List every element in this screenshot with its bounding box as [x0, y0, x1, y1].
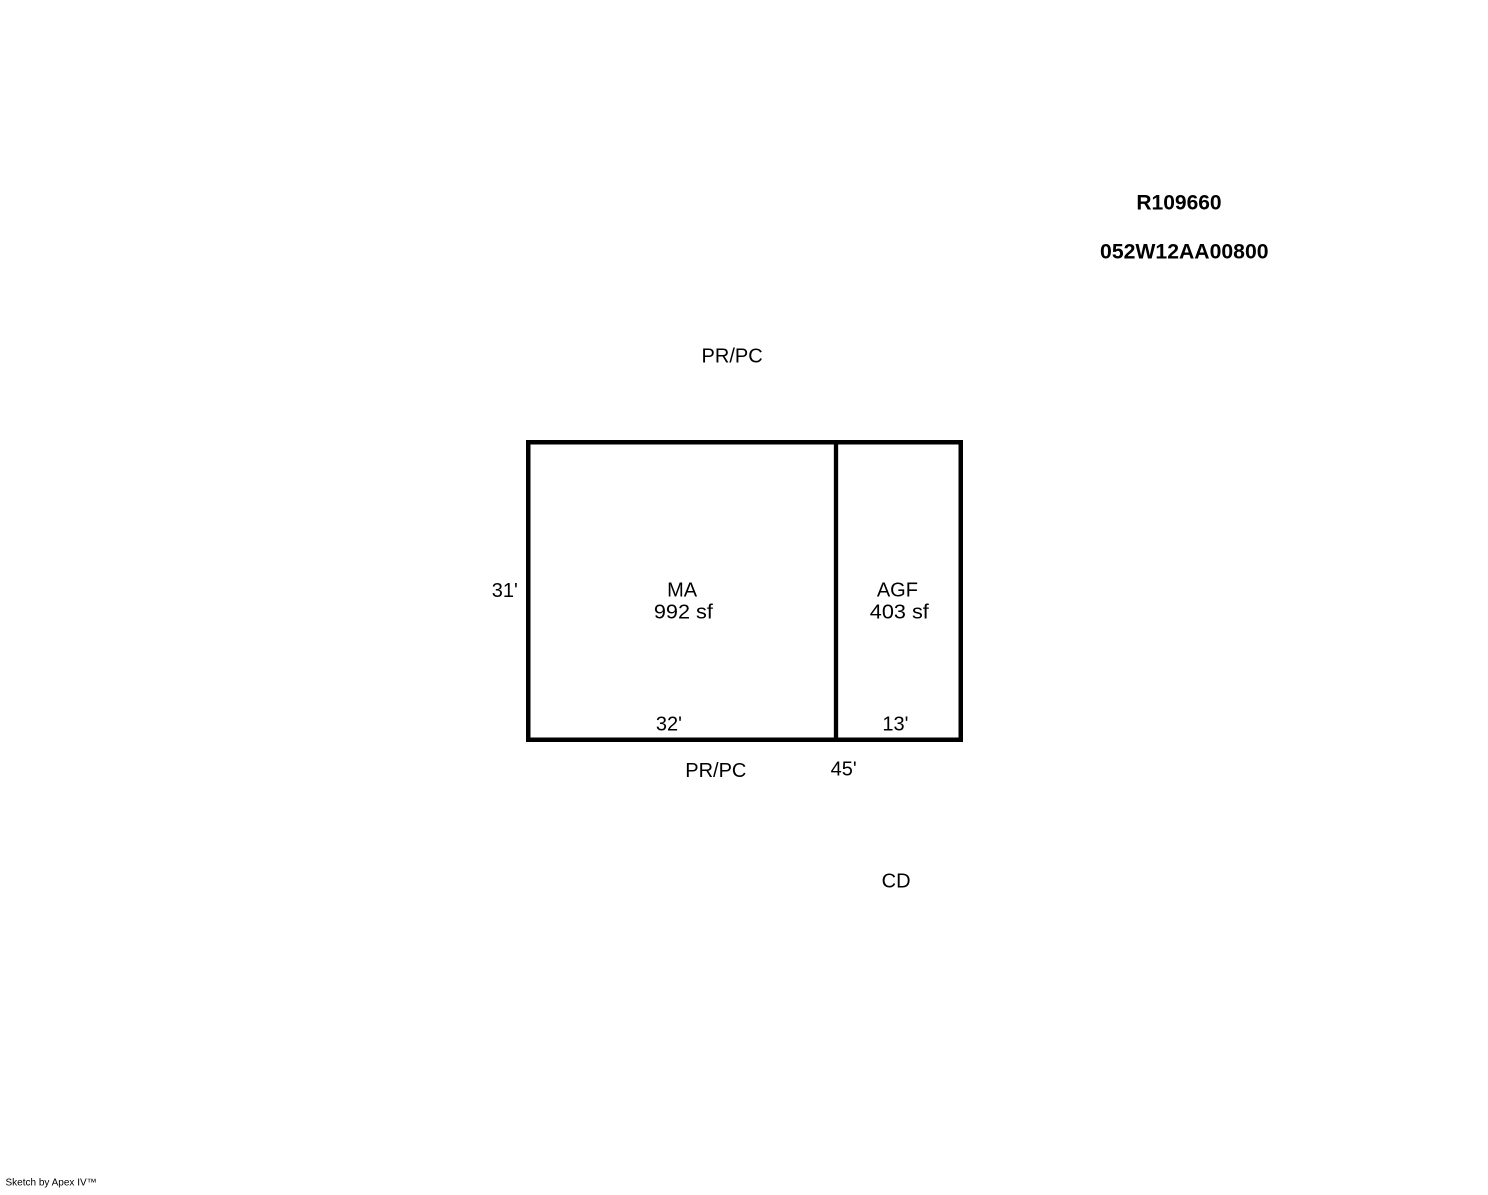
svg-text:45': 45' — [831, 759, 857, 781]
svg-text:13': 13' — [882, 714, 908, 736]
svg-text:052W12AA00800: 052W12AA00800 — [1100, 241, 1269, 264]
svg-text:CD: CD — [882, 871, 911, 893]
svg-text:AGF: AGF — [877, 580, 918, 602]
svg-text:403 sf: 403 sf — [870, 601, 929, 623]
svg-text:31': 31' — [492, 580, 518, 602]
svg-text:PR/PC: PR/PC — [685, 760, 746, 782]
svg-text:Sketch by Apex IV™: Sketch by Apex IV™ — [6, 1178, 97, 1189]
svg-text:R109660: R109660 — [1136, 192, 1221, 215]
svg-text:MA: MA — [667, 580, 698, 602]
svg-text:32': 32' — [656, 714, 682, 736]
svg-text:PR/PC: PR/PC — [702, 346, 763, 368]
svg-text:992 sf: 992 sf — [654, 601, 713, 623]
